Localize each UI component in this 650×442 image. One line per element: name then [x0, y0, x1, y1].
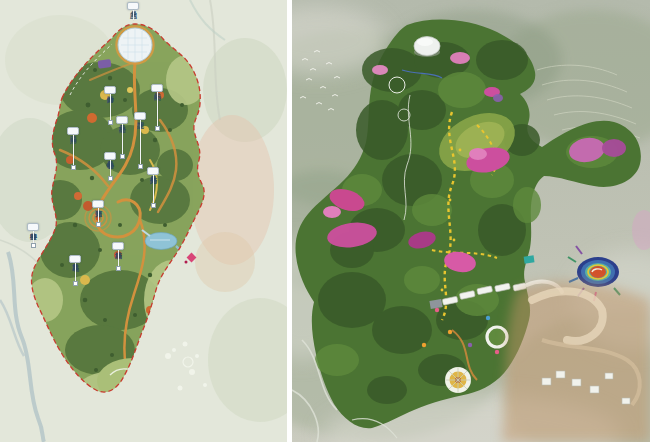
label-marker	[116, 266, 121, 271]
label-leader-line	[122, 124, 123, 154]
label-marker	[73, 281, 78, 286]
map-label-text: 演绎剧场	[112, 242, 124, 250]
label-marker	[108, 176, 113, 181]
label-leader-line	[33, 231, 34, 243]
label-leader-line	[110, 160, 111, 176]
map-label-bamboo-sea: 竹海听涛	[104, 86, 116, 125]
label-leader-line	[133, 10, 134, 20]
label-marker	[108, 120, 113, 125]
label-leader-line	[75, 263, 76, 281]
map-label-text: 龙翔瀑布	[92, 200, 104, 208]
label-leader-line	[118, 250, 119, 266]
label-marker	[71, 165, 76, 170]
map-label-text: 竹海听涛	[104, 86, 116, 94]
map-label-text: 凤凰会议中心	[104, 152, 116, 160]
map-label-text: 月上天阙	[127, 2, 139, 10]
map-label-lianli-court: 连理院	[134, 112, 146, 169]
label-leader-line	[140, 120, 141, 164]
masterplan-art	[0, 0, 287, 442]
masterplan-map-image: 月上天阙 竹海听涛 听风阁 隐凤林 连理院 凤凰会议中心 游乐园 凤凰灯光秀 龙…	[0, 0, 287, 442]
label-leader-line	[110, 94, 111, 120]
label-leader-line	[153, 175, 154, 203]
map-label-wind-pavilion: 听风阁	[151, 84, 163, 131]
two-panel-park-plan-image: 月上天阙 竹海听涛 听风阁 隐凤林 连理院 凤凰会议中心 游乐园 凤凰灯光秀 龙…	[0, 0, 650, 442]
map-label-conference-center: 凤凰会议中心	[104, 152, 116, 181]
map-label-light-show: 凤凰灯光秀	[147, 167, 159, 208]
map-label-text: 游乐园	[67, 127, 79, 135]
map-label-visitor-center: 游客接待中心	[27, 223, 39, 248]
map-label-hundred-flowers: 凤凰百花	[69, 255, 81, 286]
map-label-theater: 演绎剧场	[112, 242, 124, 271]
map-label-text: 凤凰百花	[69, 255, 81, 263]
label-leader-line	[157, 92, 158, 126]
label-marker	[120, 154, 125, 159]
map-label-text: 游客接待中心	[27, 223, 39, 231]
label-leader-line	[98, 208, 99, 222]
dome-building	[414, 37, 440, 58]
map-label-text: 连理院	[134, 112, 146, 120]
map-label-waterfall: 龙翔瀑布	[92, 200, 104, 227]
map-label-hidden-phoenix-forest: 隐凤林	[116, 116, 128, 159]
label-marker	[96, 222, 101, 227]
label-marker	[31, 243, 36, 248]
map-label-amusement-park: 游乐园	[67, 127, 79, 170]
map-label-moon-pavilion: 月上天阙	[127, 2, 139, 20]
aerial-art	[292, 0, 650, 442]
label-marker	[151, 203, 156, 208]
map-label-text: 凤凰灯光秀	[147, 167, 159, 175]
moon-plaza	[117, 27, 154, 64]
map-label-text: 隐凤林	[116, 116, 128, 124]
label-marker	[138, 164, 143, 169]
map-label-text: 听风阁	[151, 84, 163, 92]
tan-terrain	[502, 281, 650, 442]
label-leader-line	[73, 135, 74, 165]
aerial-render-image	[292, 0, 650, 442]
flower-mandala	[445, 367, 471, 393]
label-marker	[155, 126, 160, 131]
